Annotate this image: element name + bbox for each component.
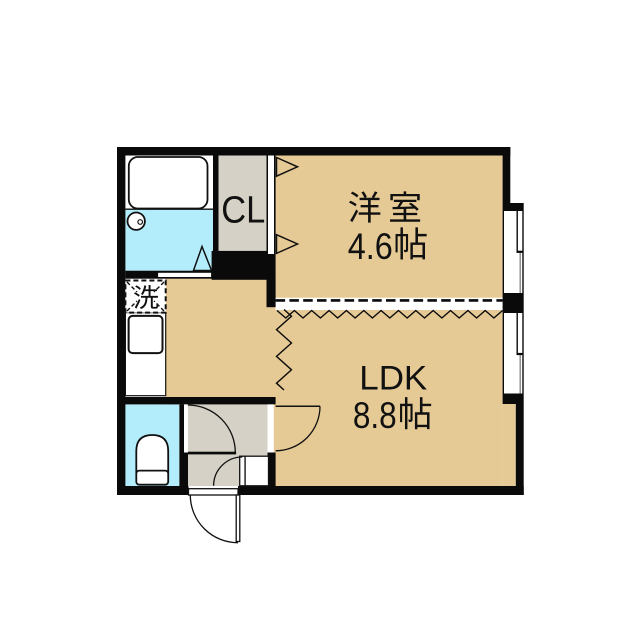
svg-text:8.8: 8.8 — [353, 395, 397, 436]
svg-text:4.6: 4.6 — [348, 226, 393, 267]
svg-text:LDK: LDK — [359, 360, 427, 398]
svg-text:CL: CL — [221, 189, 265, 231]
